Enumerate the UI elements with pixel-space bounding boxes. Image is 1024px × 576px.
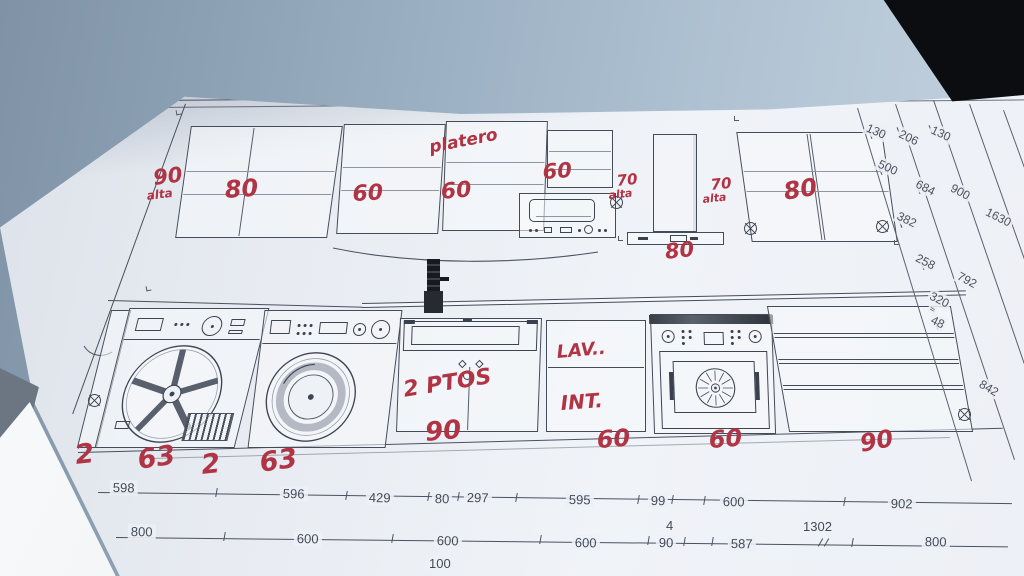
red-note-hood-width: 80 <box>664 239 695 263</box>
dim-label: 800 <box>128 524 156 539</box>
dim-label: 80 <box>432 491 453 506</box>
dim-label: 99 <box>648 493 669 508</box>
red-note-gap4: 63 <box>258 445 299 477</box>
red-note-oven-width: 60 <box>708 426 743 452</box>
red-note-dw-line1: LAV.. <box>556 340 606 362</box>
corner-mark <box>734 116 739 121</box>
red-note-gap1: 2 <box>74 440 96 469</box>
dishwasher-cabinet <box>546 320 646 432</box>
dim-label: 90 <box>656 535 677 550</box>
red-note-hood-right-word: alta <box>702 192 727 205</box>
faucet-spout <box>440 277 449 281</box>
faucet-base <box>424 291 443 313</box>
dryer-button <box>230 319 246 326</box>
dryer-filter-door <box>114 421 130 429</box>
dryer-display <box>135 318 164 331</box>
red-note-dw-line2: INT. <box>560 390 603 413</box>
dim-label: 429 <box>366 490 394 505</box>
oven-handle <box>755 372 760 400</box>
red-note-cab3-width: 60 <box>440 179 472 204</box>
red-note-hood-left-word: alta <box>608 188 633 201</box>
dim-label: 297 <box>464 490 492 505</box>
dim-label-above: 1302 <box>800 519 835 534</box>
dim-label: 902 <box>888 496 916 511</box>
red-note-gap3: 2 <box>200 450 222 479</box>
dim-label: 600 <box>294 531 322 546</box>
panel-line <box>123 339 259 340</box>
section-cut-symbol <box>744 222 757 235</box>
hob-strip <box>649 315 773 324</box>
dim-label: 587 <box>728 536 756 551</box>
oven-cabinet <box>650 314 776 434</box>
oven-display <box>704 332 724 345</box>
drawer-line <box>778 359 959 364</box>
washer-knob <box>370 320 391 339</box>
dim-label: 600 <box>434 533 462 548</box>
panel-line <box>262 343 396 344</box>
red-note-cab4-width: 60 <box>542 160 573 183</box>
dim-label: 596 <box>280 486 308 501</box>
drawer-line <box>783 385 964 390</box>
section-cut-symbol <box>88 394 101 407</box>
red-note-left-height-value: 90 <box>152 164 184 188</box>
red-note-cab2-width: 60 <box>352 182 384 206</box>
dim-label: 100 <box>426 556 454 571</box>
sink-bowl <box>411 326 520 345</box>
oven-front <box>659 351 770 429</box>
faucet-stem <box>427 259 440 292</box>
dim-label: 600 <box>720 494 748 509</box>
oven-knob <box>748 330 761 343</box>
washer-knob <box>352 323 367 336</box>
washer-display <box>319 322 348 334</box>
dim-label-above: 4 <box>663 518 676 533</box>
corner-mark <box>618 236 623 241</box>
washer-porthole <box>257 349 365 445</box>
panel-line <box>548 367 644 368</box>
dim-label: 598 <box>110 480 138 495</box>
red-note-left-height-word: alta <box>146 187 173 202</box>
corner-mark <box>176 110 182 116</box>
red-note-gap2: 63 <box>136 442 177 474</box>
dim-label: 800 <box>922 534 950 549</box>
dryer-button <box>228 330 243 334</box>
oven-fan <box>693 366 739 410</box>
dryer-knob <box>199 316 224 336</box>
vent-grille <box>181 413 234 441</box>
corner-mark <box>146 286 152 292</box>
red-note-cab1-width: 80 <box>224 176 259 202</box>
red-note-dw-width: 60 <box>596 426 631 452</box>
oven-knob <box>661 330 674 343</box>
photo-of-kitchen-plan: 130 206 130 500 684 900 382 1630 258 792… <box>0 0 1024 576</box>
red-note-right-cab-width: 80 <box>782 175 819 204</box>
dim-label: 600 <box>572 535 600 550</box>
dim-label: 595 <box>566 492 594 507</box>
section-cut-symbol <box>958 408 971 421</box>
washing-machine <box>248 310 403 448</box>
red-note-sink-width: 90 <box>424 417 462 446</box>
detergent-drawer <box>270 320 292 334</box>
section-cut-symbol <box>876 220 889 233</box>
red-note-drawers-width: 90 <box>858 426 895 455</box>
